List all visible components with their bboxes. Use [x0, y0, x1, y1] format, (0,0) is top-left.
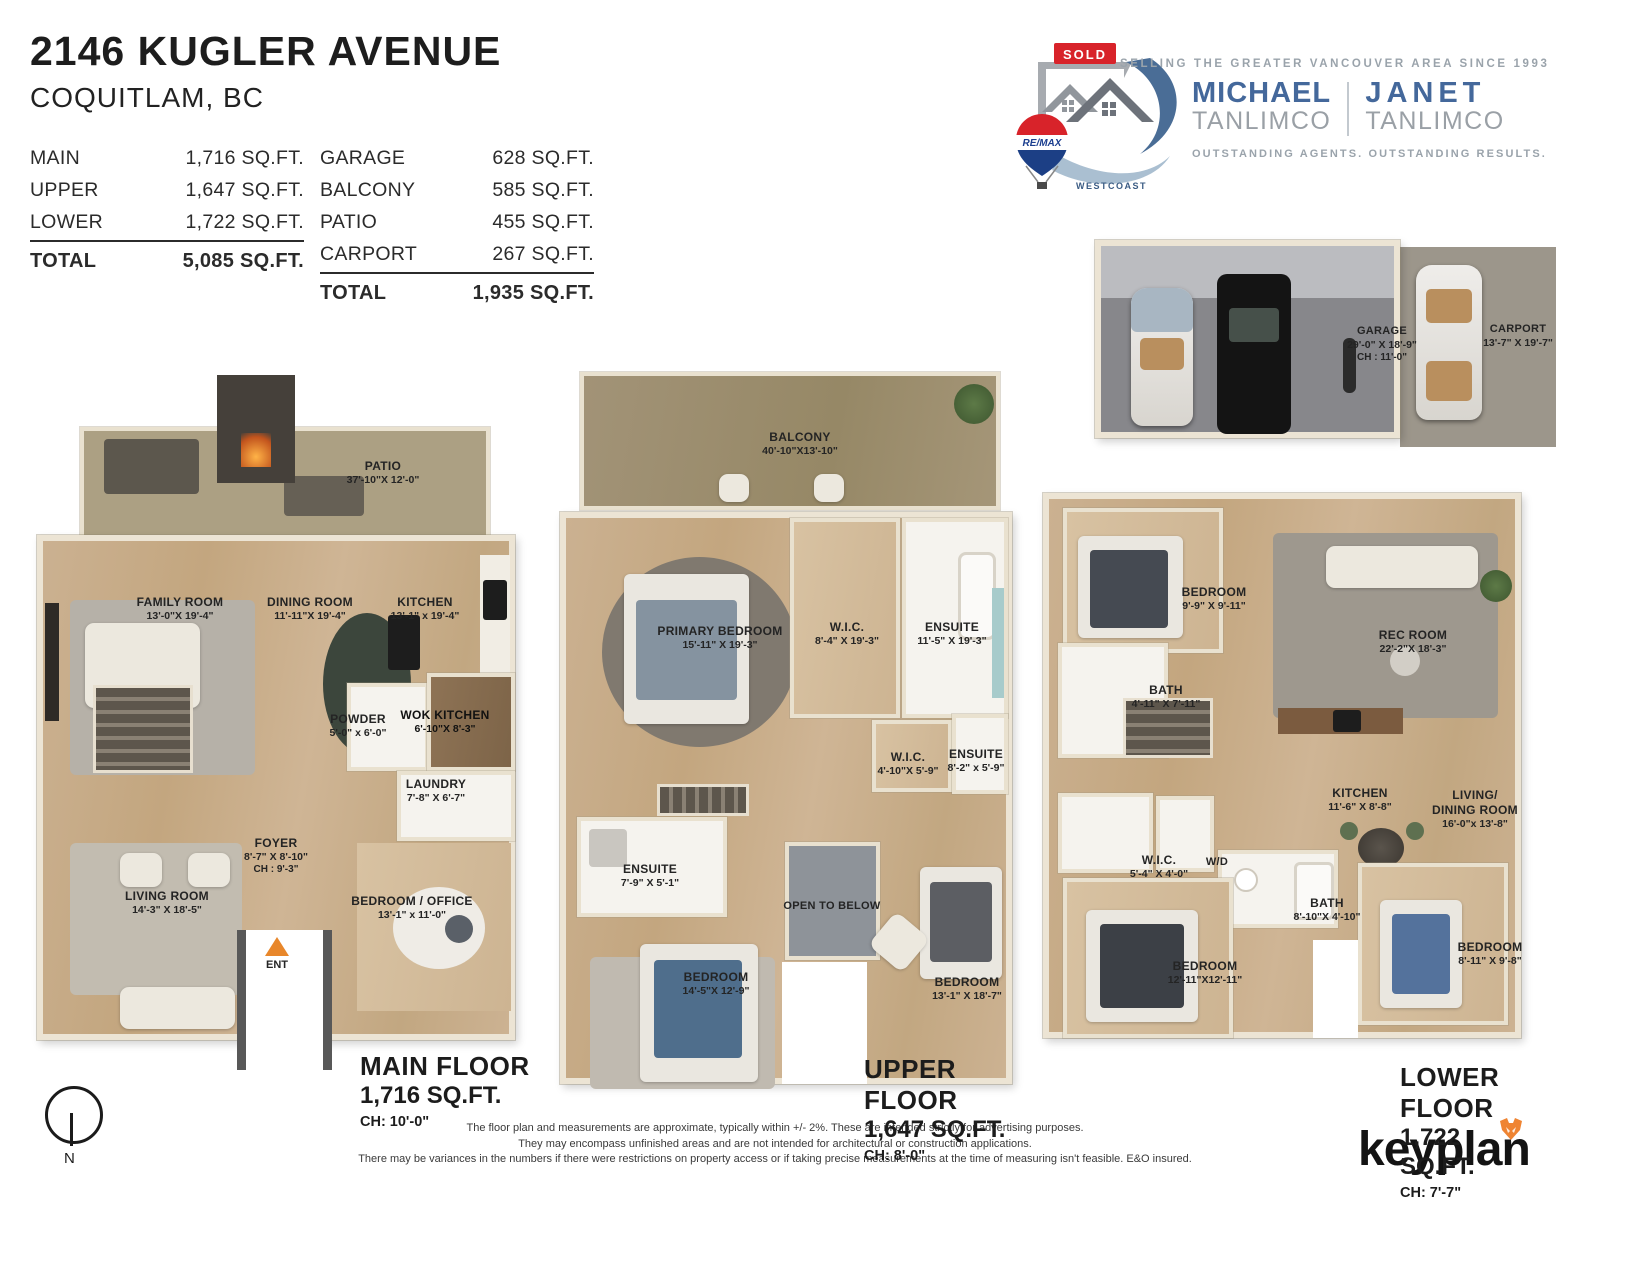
table-row: LOWER1,722 SQ.FT.: [30, 206, 304, 238]
agent-last-name: TANLIMCO: [1365, 108, 1504, 136]
room-name: FOYER: [244, 836, 308, 851]
bed-blanket: [930, 882, 992, 962]
floor-name: LOWER FLOOR: [1400, 1062, 1538, 1124]
compass-circle-icon: [45, 1086, 103, 1144]
car-rear-window: [1426, 361, 1472, 401]
room-label-washer-dryer: W/D: [1206, 856, 1228, 870]
entry-arrow-icon: [265, 937, 289, 956]
room-label-living-dining: LIVING/DINING ROOM16'-0"x 13'-8": [1432, 788, 1518, 831]
room-dims: 40'-10"X13'-10": [762, 445, 838, 458]
kitchen-island: [388, 615, 420, 670]
room-label-wic: W.I.C.4'-10"X 5'-9": [877, 750, 938, 778]
row-label: BALCONY: [320, 179, 415, 202]
room-name: PATIO: [347, 459, 420, 474]
room-label-bedroom: BEDROOM14'-5"X 12'-9": [683, 970, 750, 998]
remax-balloon: RE/MAX: [1016, 114, 1068, 189]
bed-blanket: [1392, 914, 1450, 994]
total-value: 5,085 SQ.FT.: [183, 250, 304, 273]
room-label-patio: PATIO37'-10"X 12'-0": [347, 459, 420, 487]
room-dims: 13'-7" X 19'-7": [1483, 337, 1553, 350]
room-name: ENSUITE: [917, 620, 986, 635]
total-label: TOTAL: [320, 282, 386, 305]
room-label-family-room: FAMILY ROOM13'-0"X 19'-4": [137, 595, 224, 623]
balcony-chair: [814, 474, 844, 502]
room-name: CARPORT: [1483, 323, 1553, 337]
truck-window: [1229, 308, 1279, 342]
room-dims: 8'-7" X 8'-10": [244, 851, 308, 864]
table-row: PATIO455 SQ.FT.: [320, 206, 594, 238]
room-dims: 13'-0"X 19'-4": [137, 610, 224, 623]
row-value: 1,716 SQ.FT.: [186, 147, 305, 170]
room-label-bedroom-office: BEDROOM / OFFICE13'-1" x 11'-0": [351, 894, 472, 922]
room-label-ensuite: ENSUITE11'-5" X 19'-3": [917, 620, 986, 648]
agent-names: MICHAEL TANLIMCO JANET TANLIMCO: [1192, 78, 1505, 136]
floor-area: 1,647 SQ.FT.: [864, 1116, 1018, 1145]
room-dims: 7'-8" X 6'-7": [406, 792, 466, 805]
room-label-balcony: BALCONY40'-10"X13'-10": [762, 430, 838, 458]
room-name: LIVING/: [1432, 788, 1518, 803]
room-dims: 4'-10"X 5'-9": [877, 765, 938, 778]
room-label-open-to-below: OPEN TO BELOW: [783, 900, 880, 914]
room-label-ensuite: ENSUITE8'-2" x 5'-9": [948, 747, 1005, 775]
plant: [1480, 570, 1512, 602]
room-label-wok-kitchen: WOK KITCHEN6'-10"X 8'-3": [400, 708, 489, 736]
room-dims: 14'-3" X 18'-5": [125, 904, 209, 917]
room-name: BEDROOM: [683, 970, 750, 985]
living-room-sofa: [120, 987, 235, 1029]
floor-ceiling-height: CH: 8'-0": [864, 1148, 1018, 1165]
row-label: GARAGE: [320, 147, 405, 170]
room-name: BALCONY: [762, 430, 838, 445]
row-value: 1,722 SQ.FT.: [186, 211, 305, 234]
room-label-laundry: LAUNDRY7'-8" X 6'-7": [406, 777, 466, 805]
room-dims: 29'-0" X 18'-9": [1347, 339, 1417, 352]
total-label: TOTAL: [30, 250, 96, 273]
fireplace-chimney: [217, 375, 295, 483]
room-name: KITCHEN: [391, 595, 460, 610]
room-dims: 6'-10"X 8'-3": [400, 723, 489, 736]
room-dims: 12'-11"X12'-11": [1168, 974, 1243, 987]
room-dims: 9'-9" X 9'-11": [1182, 600, 1247, 613]
row-label: UPPER: [30, 179, 99, 202]
compass-needle-icon: [70, 1113, 73, 1146]
row-label: CARPORT: [320, 243, 417, 266]
room-dims: 11'-6" X 8'-8": [1328, 801, 1391, 814]
room-name: FAMILY ROOM: [137, 595, 224, 610]
room-label-garage: GARAGE 29'-0" X 18'-9" CH : 11'-0": [1347, 325, 1417, 364]
room-label-bedroom: BEDROOM9'-9" X 9'-11": [1182, 585, 1247, 613]
table-row: GARAGE628 SQ.FT.: [320, 142, 594, 174]
row-value: 628 SQ.FT.: [492, 147, 594, 170]
room-name: BATH: [1294, 896, 1361, 911]
room-name: BEDROOM: [1168, 959, 1243, 974]
disclaimer-line: There may be variances in the numbers if…: [325, 1152, 1225, 1168]
remax-balloon-label: RE/MAX: [1023, 138, 1063, 149]
room-name: W.I.C.: [1130, 853, 1188, 868]
room-name: DINING ROOM: [267, 595, 353, 610]
room-dims: 8'-4" X 19'-3": [815, 635, 879, 648]
room-label-bedroom: BEDROOM13'-1" X 18'-7": [932, 975, 1002, 1003]
compass-north-label: N: [64, 1150, 75, 1167]
room-dims: 7'-9" X 5'-1": [621, 877, 679, 890]
room-dims: 11'-11"X 19'-4": [267, 610, 353, 623]
room-label-wic: W.I.C.5'-4" X 4'-0": [1130, 853, 1188, 881]
main-floor-title: MAIN FLOOR 1,716 SQ.FT. CH: 10'-0": [360, 1051, 530, 1131]
room-label-bath: BATH4'-11" X 7'-11": [1132, 683, 1201, 711]
room-label-rec-room: REC ROOM22'-2"X 18'-3": [1379, 628, 1447, 656]
table-total-row: TOTAL5,085 SQ.FT.: [30, 245, 304, 277]
room-name: KITCHEN: [1328, 786, 1391, 801]
walk-in-closet-room: [790, 518, 900, 718]
entry-label: ENT: [266, 959, 288, 971]
agent-first-name: MICHAEL: [1192, 78, 1331, 108]
room-label-carport: CARPORT 13'-7" X 19'-7": [1483, 323, 1553, 350]
main-floor-plan: ENT PATIO37'-10"X 12'-0" FAMILY ROOM13'-…: [25, 375, 530, 1120]
room-label-dining-room: DINING ROOM11'-11"X 19'-4": [267, 595, 353, 623]
room-dims: 11'-5" X 19'-3": [917, 635, 986, 648]
room-label-ensuite: ENSUITE7'-9" X 5'-1": [621, 862, 679, 890]
dining-table: [1358, 828, 1404, 868]
room-dims: 16'-0"x 13'-8": [1432, 818, 1518, 831]
room-dims: 13'-1" x 19'-4": [391, 610, 460, 623]
table-row: CARPORT267 SQ.FT.: [320, 238, 594, 270]
disclaimer-line: They may encompass unfinished areas and …: [325, 1137, 1225, 1153]
room-name: WOK KITCHEN: [400, 708, 489, 723]
car-cover: [1131, 288, 1193, 332]
glass-shower: [992, 588, 1004, 698]
room-dims: 5'-0" x 6'-0": [330, 727, 387, 740]
floor-notch: [782, 962, 867, 1084]
row-value: 267 SQ.FT.: [492, 243, 594, 266]
room-name: BEDROOM / OFFICE: [351, 894, 472, 909]
tv-console: [45, 603, 59, 721]
room-name: REC ROOM: [1379, 628, 1447, 643]
brand-tagline-bottom: OUTSTANDING AGENTS. OUTSTANDING RESULTS.: [1192, 148, 1547, 160]
room-ceiling-height: CH : 9'-3": [244, 864, 308, 877]
room-name: LIVING ROOM: [125, 889, 209, 904]
row-label: MAIN: [30, 147, 80, 170]
patio-furniture: [104, 439, 199, 494]
garage-plan: GARAGE 29'-0" X 18'-9" CH : 11'-0" CARPO…: [1090, 225, 1560, 447]
swoosh-light: [1052, 156, 1170, 184]
plant: [954, 384, 994, 424]
room-dims: 13'-1" X 18'-7": [932, 990, 1002, 1003]
table-row: BALCONY585 SQ.FT.: [320, 174, 594, 206]
room-name: PRIMARY BEDROOM: [657, 624, 782, 639]
armchair: [120, 853, 162, 887]
room-label-wic: W.I.C.8'-4" X 19'-3": [815, 620, 879, 648]
room-dims: 8'-10"X 4'-10": [1294, 911, 1361, 924]
room-name: OPEN TO BELOW: [783, 900, 880, 914]
room-dims: 8'-2" x 5'-9": [948, 762, 1005, 775]
room-name: W/D: [1206, 856, 1228, 870]
truck: [1217, 274, 1291, 434]
table-row: MAIN1,716 SQ.FT.: [30, 142, 304, 174]
floor-notch: [1313, 940, 1358, 1038]
row-value: 1,647 SQ.FT.: [186, 179, 305, 202]
agent-1: MICHAEL TANLIMCO: [1192, 78, 1331, 136]
room-name: BEDROOM: [1182, 585, 1247, 600]
toilet: [1234, 868, 1258, 892]
room-label-bath: BATH8'-10"X 4'-10": [1294, 896, 1361, 924]
row-label: LOWER: [30, 211, 103, 234]
agent-first-name: JANET: [1365, 78, 1504, 108]
table-total-row: TOTAL1,935 SQ.FT.: [320, 277, 594, 309]
room-ceiling-height: CH : 11'-0": [1347, 352, 1417, 365]
room-dims: 4'-11" X 7'-11": [1132, 698, 1201, 711]
room-label-foyer: FOYER8'-7" X 8'-10"CH : 9'-3": [244, 836, 308, 877]
room-name: BEDROOM: [932, 975, 1002, 990]
car-windshield: [1426, 289, 1472, 323]
table-rule: [30, 240, 304, 242]
room-label-primary-bedroom: PRIMARY BEDROOM15'-11" X 19'-3": [657, 624, 782, 652]
chair: [1406, 822, 1424, 840]
room-dims: 5'-4" X 4'-0": [1130, 868, 1188, 881]
table-row: UPPER1,647 SQ.FT.: [30, 174, 304, 206]
carport-car: [1416, 265, 1482, 420]
room-name: W.I.C.: [815, 620, 879, 635]
room-name: GARAGE: [1347, 325, 1417, 339]
stove: [483, 580, 507, 620]
stairs: [657, 784, 749, 816]
room-name: W.I.C.: [877, 750, 938, 765]
room-dims: 13'-1" x 11'-0": [351, 909, 472, 922]
floor-area: 1,716 SQ.FT.: [360, 1082, 530, 1111]
agent-last-name: TANLIMCO: [1192, 108, 1331, 136]
lower-floor-plan: BEDROOM9'-9" X 9'-11" REC ROOM22'-2"X 18…: [1028, 478, 1538, 1138]
balcony-chair: [719, 474, 749, 502]
row-value: 585 SQ.FT.: [492, 179, 594, 202]
agent-divider: [1347, 82, 1349, 136]
westcoast-label: WESTCOAST: [1076, 181, 1147, 191]
armchair: [188, 853, 230, 887]
area-table-outdoor: GARAGE628 SQ.FT. BALCONY585 SQ.FT. PATIO…: [320, 142, 594, 309]
room-name: LAUNDRY: [406, 777, 466, 792]
room-dims: 8'-11" X 9'-8": [1458, 955, 1523, 968]
room-dims: 15'-11" X 19'-3": [657, 639, 782, 652]
room-label-bedroom: BEDROOM12'-11"X12'-11": [1168, 959, 1243, 987]
room-name: POWDER: [330, 712, 387, 727]
north-compass: N: [42, 1086, 106, 1176]
ensuite-room: [902, 518, 1008, 718]
car: [1131, 288, 1193, 426]
room-dims: 22'-2"X 18'-3": [1379, 643, 1447, 656]
room-label-bedroom: BEDROOM8'-11" X 9'-8": [1458, 940, 1523, 968]
lower-floor-title: LOWER FLOOR 1,722 SQ.FT. CH: 7'-7": [1400, 1062, 1538, 1202]
room-name: BATH: [1132, 683, 1201, 698]
row-label: PATIO: [320, 211, 377, 234]
room-dims: 37'-10"X 12'-0": [347, 474, 420, 487]
room-name: DINING ROOM: [1432, 803, 1518, 818]
room-name: BEDROOM: [1458, 940, 1523, 955]
upper-floor-plan: BALCONY40'-10"X13'-10" PRIMARY BEDROOM15…: [552, 362, 1018, 1134]
upper-floor-title: UPPER FLOOR 1,647 SQ.FT. CH: 8'-0": [864, 1054, 1018, 1166]
bed-blanket: [1090, 550, 1168, 628]
room-dims: 14'-5"X 12'-9": [683, 985, 750, 998]
total-value: 1,935 SQ.FT.: [473, 282, 594, 305]
row-value: 455 SQ.FT.: [492, 211, 594, 234]
room-name: ENSUITE: [621, 862, 679, 877]
brand-tagline-top: SELLING THE GREATER VANCOUVER AREA SINCE…: [1120, 58, 1549, 70]
room-label-kitchen: KITCHEN13'-1" x 19'-4": [391, 595, 460, 623]
floor-ceiling-height: CH: 7'-7": [1400, 1185, 1538, 1202]
floor-name: UPPER FLOOR: [864, 1054, 1018, 1116]
fireplace-fire: [241, 433, 271, 467]
page-subtitle: COQUITLAM, BC: [30, 82, 264, 114]
stove: [1333, 710, 1361, 732]
agent-2: JANET TANLIMCO: [1365, 78, 1504, 136]
floor-ceiling-height: CH: 10'-0": [360, 1114, 530, 1131]
floor-area: 1,722 SQ.FT.: [1400, 1124, 1538, 1182]
table-rule: [320, 272, 594, 274]
room-label-living-room: LIVING ROOM14'-3" X 18'-5": [125, 889, 209, 917]
floor-name: MAIN FLOOR: [360, 1051, 530, 1082]
page-title: 2146 KUGLER AVENUE: [30, 28, 501, 75]
rec-room-sofa: [1326, 546, 1478, 588]
room-label-kitchen: KITCHEN11'-6" X 8'-8": [1328, 786, 1391, 814]
sold-sign-label: SOLD: [1063, 47, 1107, 62]
car-windshield: [1140, 338, 1184, 370]
room-name: ENSUITE: [948, 747, 1005, 762]
room-label-powder: POWDER5'-0" x 6'-0": [330, 712, 387, 740]
chair: [1340, 822, 1358, 840]
area-table-floors: MAIN1,716 SQ.FT. UPPER1,647 SQ.FT. LOWER…: [30, 142, 304, 277]
stairs: [93, 685, 193, 773]
